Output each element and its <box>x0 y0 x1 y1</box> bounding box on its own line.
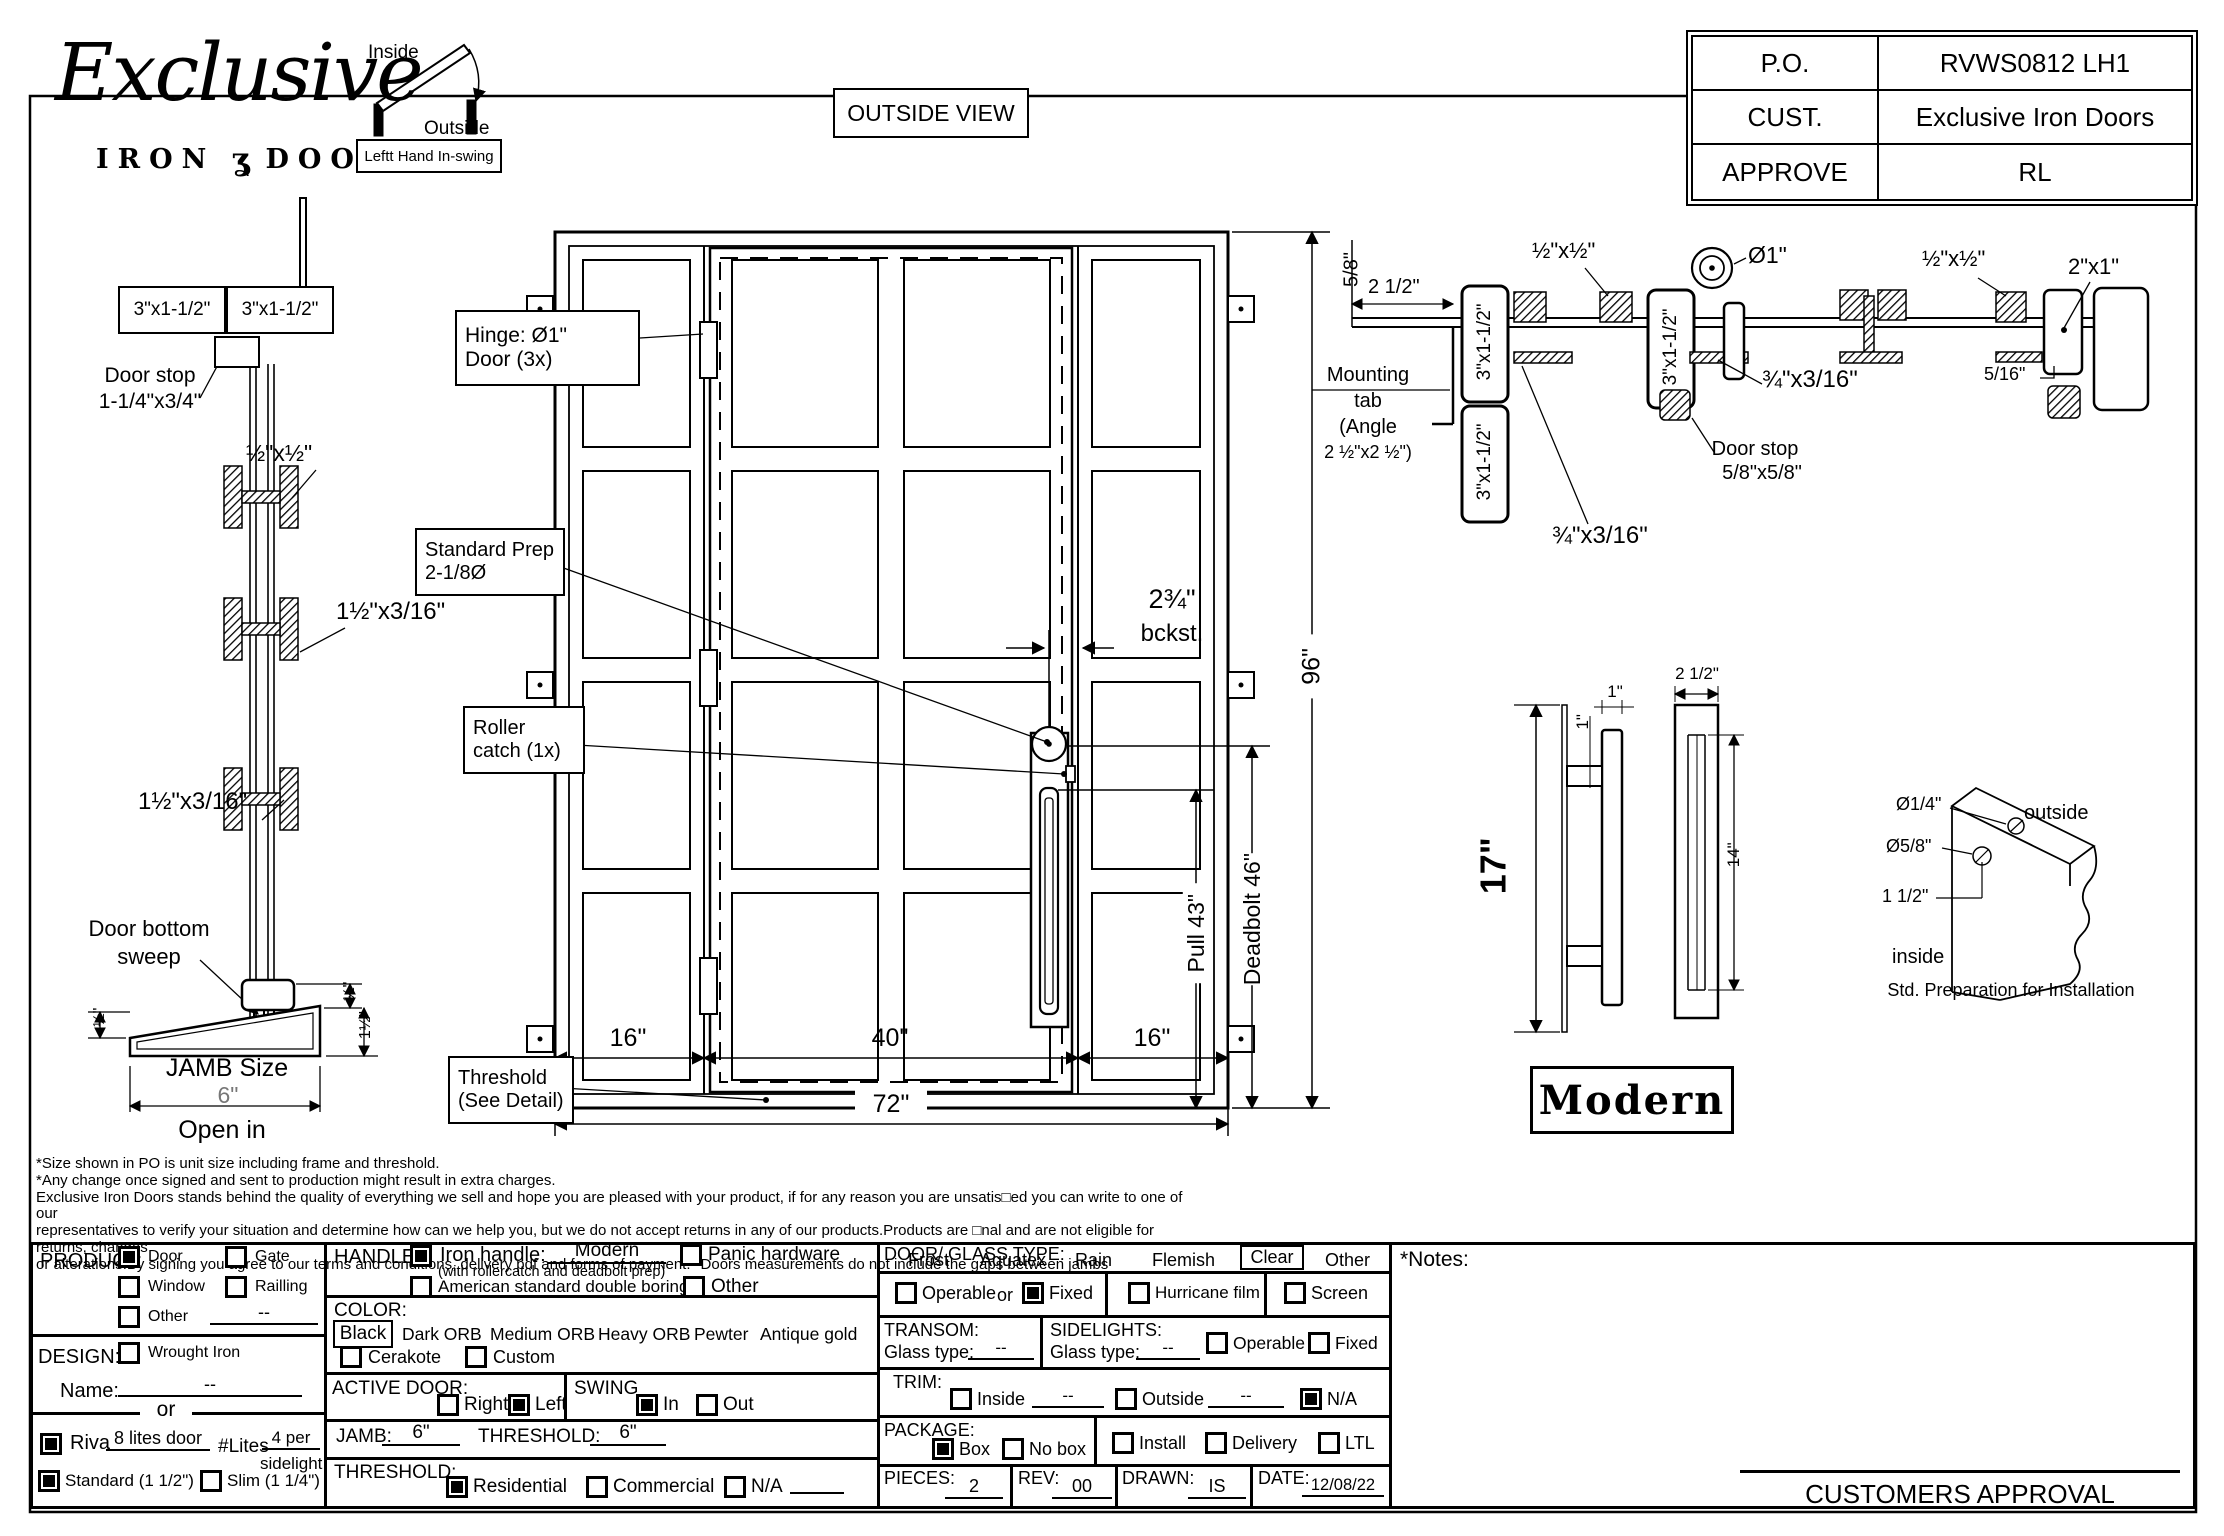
roller-catch-icon <box>1066 766 1075 782</box>
handle-dim-17: 17" <box>1472 831 1513 901</box>
american-boring-label: American standard double boring <box>438 1277 688 1297</box>
riva-lites-value-1[interactable]: 4 per <box>262 1428 320 1450</box>
backset-dim-label: bckst. <box>1124 620 1220 648</box>
commercial-label: Commercial <box>613 1476 714 1498</box>
product-door-label: Door <box>148 1248 183 1266</box>
threshold-na-checkbox[interactable] <box>724 1476 746 1498</box>
design-wrought-label: Wrought Iron <box>148 1344 240 1362</box>
color-title: COLOR: <box>334 1300 407 1322</box>
dim-total-width: 72" <box>855 1090 927 1119</box>
head-door-stop-label-2: 5/8"x5/8" <box>1702 462 1822 485</box>
roller-callout-line1: Roller <box>473 717 525 740</box>
prep-callout-line2: 2-1/8Ø <box>425 562 486 585</box>
design-or-label: or <box>140 1398 192 1422</box>
color-opt-mediumorb[interactable]: Medium ORB <box>490 1324 595 1344</box>
install-label: Install <box>1139 1433 1186 1454</box>
active-left-checkbox[interactable] <box>508 1394 530 1416</box>
trim-inside-checkbox[interactable] <box>950 1388 972 1410</box>
logo-iron: IRON <box>96 144 215 175</box>
panic-label: Panic hardware <box>708 1244 840 1266</box>
date-value[interactable]: 12/08/22 <box>1302 1476 1384 1497</box>
jamb-open-label: Open in <box>160 1116 284 1145</box>
panic-checkbox[interactable] <box>680 1244 702 1266</box>
trim-outside-checkbox[interactable] <box>1115 1388 1137 1410</box>
handle-dim-25: 2 1/2" <box>1660 664 1734 684</box>
logo-ornament-icon: ʓ <box>231 140 249 178</box>
delivery-checkbox[interactable] <box>1205 1432 1227 1454</box>
handle-title: HANDLE: <box>334 1246 421 1269</box>
product-other-value[interactable]: -- <box>210 1302 318 1325</box>
backset-dim <box>1006 630 1114 726</box>
glass-opt-aquatex[interactable]: Aquatex <box>980 1250 1046 1271</box>
dim-deadbolt-height: Deadbolt 46" <box>1239 853 1265 985</box>
package-nobox-checkbox[interactable] <box>1002 1438 1024 1460</box>
approval-signature-line <box>1740 1470 2180 1473</box>
ltl-checkbox[interactable] <box>1318 1432 1340 1454</box>
customer-value: Exclusive Iron Doors <box>1879 91 2191 145</box>
operable-label: Operable <box>922 1283 996 1304</box>
operable-checkbox[interactable] <box>895 1282 917 1304</box>
handle-other-checkbox[interactable] <box>683 1276 705 1298</box>
install-checkbox[interactable] <box>1112 1432 1134 1454</box>
slim-label: Slim (1 1/4") <box>227 1471 320 1491</box>
glass-opt-other[interactable]: Other <box>1325 1250 1370 1271</box>
corner-hole-small: Ø1/4" <box>1896 794 1941 815</box>
active-right-checkbox[interactable] <box>437 1394 459 1416</box>
pieces-value[interactable]: 2 <box>945 1476 1003 1499</box>
hinge-icon <box>700 322 717 1014</box>
jamb-door-stop-label: Door stop <box>85 364 215 388</box>
swing-title: SWING <box>574 1378 638 1400</box>
drawn-label: DRAWN: <box>1122 1468 1194 1489</box>
sidelights-glass-value[interactable]: -- <box>1136 1338 1200 1360</box>
riva-checkbox[interactable] <box>40 1433 62 1455</box>
trim-title: TRIM: <box>893 1372 942 1393</box>
door-bottom-sweep-label-1: Door bottom <box>78 916 220 941</box>
swing-caption: Leftt Hand In-swing <box>356 139 502 173</box>
design-wrought-checkbox[interactable] <box>118 1342 140 1364</box>
standard-label: Standard (1 1/2") <box>65 1471 194 1491</box>
hinge-callout: Hinge: Ø1" Door (3x) <box>455 310 640 386</box>
color-opt-darkorb[interactable]: Dark ORB <box>402 1324 482 1344</box>
head-door-stop-label-1: Door stop <box>1698 438 1812 461</box>
logo-script: Exclusive <box>55 26 422 119</box>
jamb-field-value[interactable]: 6" <box>382 1422 460 1446</box>
product-window-label: Window <box>148 1278 205 1296</box>
handle-detail-linework <box>1514 686 1744 1032</box>
standard-checkbox[interactable] <box>38 1470 60 1492</box>
fixed-checkbox[interactable] <box>1022 1282 1044 1304</box>
head-tube-c-label: 3"x1-1/2" <box>1660 289 1682 405</box>
rev-value[interactable]: 00 <box>1052 1476 1112 1499</box>
corner-hole-big: Ø5/8" <box>1886 836 1931 857</box>
corner-caption: Std. Preparation for Installation <box>1852 980 2170 1001</box>
dim-total-height: 96" <box>1298 634 1327 698</box>
trim-outside-value[interactable]: -- <box>1208 1386 1284 1408</box>
transom-glass-label: Glass type: <box>884 1342 974 1363</box>
custom-color-checkbox[interactable] <box>465 1346 487 1368</box>
spec-sheet: Exclusive IRON ʓ DOORS Inside Outside Le… <box>0 0 2224 1536</box>
notes-label: *Notes: <box>1400 1248 1469 1272</box>
transom-glass-value[interactable]: -- <box>968 1338 1034 1360</box>
fixing-or-label: or <box>997 1285 1013 1306</box>
swing-out-checkbox[interactable] <box>696 1394 718 1416</box>
sidelights-operable-label: Operable <box>1233 1333 1305 1354</box>
jamb-anchor-size: ½"x½" <box>246 440 312 466</box>
residential-checkbox[interactable] <box>446 1476 468 1498</box>
transom-title: TRANSOM: <box>884 1320 979 1341</box>
disclaimer-line-1: *Size shown in PO is unit size including… <box>36 1156 1186 1173</box>
glass-opt-frost[interactable]: Frost <box>908 1250 949 1271</box>
color-selected[interactable]: Black <box>333 1320 393 1348</box>
handle-dim-14: 14" <box>1724 833 1744 877</box>
color-opt-pewter[interactable]: Pewter <box>694 1324 748 1344</box>
head-tube-b-label: 3"x1-1/2" <box>1474 404 1496 520</box>
threshold-na-label: N/A <box>751 1476 783 1498</box>
hurricane-label: Hurricane film <box>1155 1283 1260 1303</box>
mounting-tab-label-4: 2 ½"x2 ½") <box>1298 442 1438 463</box>
head-anchor-size-1: ½"x½" <box>1532 238 1595 263</box>
head-tube-a-label: 3"x1-1/2" <box>1474 284 1496 400</box>
mounting-tab-icon <box>527 296 1254 1052</box>
approve-value: RL <box>1879 145 2191 199</box>
jamb-tube-label-b: 3"x1-1/2" <box>226 286 334 334</box>
hinge-callout-line2: Door (3x) <box>465 348 553 372</box>
fixed-label: Fixed <box>1049 1283 1093 1304</box>
jamb-dim-one-half: 1½" <box>357 1001 375 1049</box>
package-box-label: Box <box>959 1439 990 1460</box>
po-label: P.O. <box>1693 37 1879 91</box>
design-name-label: Name: <box>60 1380 119 1403</box>
threshold-callout: Threshold (See Detail) <box>448 1056 574 1124</box>
corner-spacing: 1 1/2" <box>1882 886 1928 907</box>
package-nobox-label: No box <box>1029 1439 1086 1460</box>
notes-cell <box>1389 1242 2196 1509</box>
trim-inside-value[interactable]: -- <box>1032 1386 1104 1408</box>
trim-na-label: N/A <box>1327 1389 1357 1410</box>
mounting-tab-label-2: tab <box>1312 390 1424 413</box>
glass-opt-rain[interactable]: Rain <box>1075 1250 1112 1271</box>
product-railling-label: Railling <box>255 1278 307 1296</box>
head-flat-size-2: ¾"x3/16" <box>1552 522 1648 550</box>
sidelights-fixed-label: Fixed <box>1335 1333 1378 1354</box>
sidelights-operable-checkbox[interactable] <box>1206 1332 1228 1354</box>
jamb-door-stop-size: 1-1/4"x3/4" <box>72 390 228 414</box>
ltl-label: LTL <box>1345 1433 1375 1454</box>
residential-label: Residential <box>473 1476 567 1498</box>
handle-style-label: Modern <box>1530 1066 1734 1134</box>
approve-label: APPROVE <box>1693 145 1879 199</box>
trim-na-checkbox[interactable] <box>1300 1388 1322 1410</box>
jamb-tube-label-a: 3"x1-1/2" <box>118 286 226 334</box>
swing-in-label: In <box>663 1394 679 1416</box>
american-boring-checkbox[interactable] <box>410 1276 432 1298</box>
corner-outside-label: outside <box>2024 802 2089 825</box>
head-flat-size-1: ¾"x3/16" <box>1762 366 1858 394</box>
jamb-door-stop-section <box>214 336 260 368</box>
hurricane-checkbox[interactable] <box>1128 1282 1150 1304</box>
threshold-title: THRESHOLD: <box>334 1462 456 1484</box>
glass-opt-flemish[interactable]: Flemish <box>1152 1250 1215 1271</box>
po-value: RVWS0812 LH1 <box>1879 37 2191 91</box>
delivery-label: Delivery <box>1232 1433 1297 1454</box>
sidelights-glass-label: Glass type: <box>1050 1342 1140 1363</box>
dim-sidelight-right: 16" <box>1112 1024 1192 1053</box>
dim-sidelight-left: 16" <box>588 1024 668 1053</box>
drawn-value[interactable]: IS <box>1188 1476 1246 1499</box>
commercial-checkbox[interactable] <box>586 1476 608 1498</box>
package-box-checkbox[interactable] <box>932 1438 954 1460</box>
product-other-checkbox[interactable] <box>118 1306 140 1328</box>
cerakote-checkbox[interactable] <box>340 1346 362 1368</box>
disclaimer-line-3: Exclusive Iron Doors stands behind the q… <box>36 1190 1186 1224</box>
mounting-tab-label-1: Mounting <box>1312 364 1424 387</box>
swing-inside-label: Inside <box>368 42 419 64</box>
screen-checkbox[interactable] <box>1284 1282 1306 1304</box>
color-opt-heavyorb[interactable]: Heavy ORB <box>598 1324 690 1344</box>
handle-dim-1b: 1" <box>1598 682 1632 702</box>
active-left-label: Left <box>535 1394 567 1416</box>
swing-in-checkbox[interactable] <box>636 1394 658 1416</box>
prep-callout: Standard Prep 2-1/8Ø <box>415 528 565 596</box>
jamb-size-value: 6" <box>196 1082 260 1108</box>
trim-outside-label: Outside <box>1142 1389 1204 1410</box>
product-window-checkbox[interactable] <box>118 1276 140 1298</box>
trim-inside-label: Inside <box>977 1389 1025 1410</box>
info-table: P.O. RVWS0812 LH1 CUST. Exclusive Iron D… <box>1686 30 2198 206</box>
elevation-linework <box>527 232 1330 1136</box>
head-dim-212: 2 1/2" <box>1368 276 1420 299</box>
riva-value[interactable]: 8 lites door <box>106 1428 210 1451</box>
slim-checkbox[interactable] <box>200 1470 222 1492</box>
backset-dim-value: 2¾" <box>1124 584 1220 615</box>
door-bottom-sweep-label-2: sweep <box>100 944 198 969</box>
leader-lines <box>558 334 1067 1103</box>
active-right-label: Right <box>464 1394 508 1416</box>
jamb-flat-bar-size-1: 1½"x3/16" <box>336 598 445 626</box>
custom-color-label: Custom <box>493 1347 555 1368</box>
product-door-checkbox[interactable] <box>118 1246 140 1268</box>
roller-callout-line2: catch (1x) <box>473 740 561 763</box>
swing-outside-label: Outside <box>424 118 489 140</box>
handle-other-label: Other <box>711 1276 759 1298</box>
jamb-flat-bar-size-2: 1½"x3/16" <box>138 788 247 816</box>
threshold-dim-label: THRESHOLD: <box>478 1426 600 1448</box>
design-title: DESIGN: <box>38 1346 120 1369</box>
head-anchor-size-2: ½"x½" <box>1922 246 1985 271</box>
iron-handle-checkbox[interactable] <box>410 1245 432 1267</box>
jamb-dim-half-left: ½" <box>91 995 109 1039</box>
swing-out-label: Out <box>723 1394 754 1416</box>
mounting-tab-label-3: (Angle <box>1312 416 1424 439</box>
handle-dim-1a: 1" <box>1573 705 1593 739</box>
color-opt-antiquegold[interactable]: Antique gold <box>760 1324 857 1344</box>
approval-label: CUSTOMERS APPROVAL <box>1740 1480 2180 1510</box>
product-gate-label: Gate <box>255 1248 290 1266</box>
sidelights-fixed-checkbox[interactable] <box>1308 1332 1330 1354</box>
threshold-dim-value[interactable]: 6" <box>590 1422 666 1446</box>
pull-handle-icon <box>1040 788 1058 1014</box>
glass-selected[interactable]: Clear <box>1240 1245 1304 1270</box>
head-dim-58: 5/8" <box>1341 246 1364 294</box>
product-railling-checkbox[interactable] <box>225 1276 247 1298</box>
outside-view-label: OUTSIDE VIEW <box>833 88 1029 138</box>
head-tube-21-label: 2"x1" <box>2068 254 2119 279</box>
product-gate-checkbox[interactable] <box>225 1246 247 1268</box>
head-hinge-dia: Ø1" <box>1748 242 1787 268</box>
threshold-callout-line1: Threshold <box>458 1067 547 1090</box>
head-gap-dim: 5/16" <box>1984 364 2025 385</box>
screen-label: Screen <box>1311 1283 1368 1304</box>
cerakote-label: Cerakote <box>368 1347 441 1368</box>
roller-catch-callout: Roller catch (1x) <box>463 706 585 774</box>
dim-door-width: 40" <box>850 1024 930 1053</box>
corner-inside-label: inside <box>1892 946 1944 969</box>
iron-handle-value[interactable]: Modern <box>548 1240 666 1264</box>
dim-pull-height: Pull 43" <box>1183 883 1209 983</box>
riva-label: Riva <box>70 1432 110 1455</box>
customer-label: CUST. <box>1693 91 1879 145</box>
design-name-value[interactable]: -- <box>118 1374 302 1397</box>
hinge-callout-line1: Hinge: Ø1" <box>465 324 567 348</box>
prep-callout-line1: Standard Prep <box>425 539 554 562</box>
jamb-size-label: JAMB Size <box>146 1054 308 1083</box>
disclaimer-line-2: *Any change once signed and sent to prod… <box>36 1173 1186 1190</box>
product-other-label: Other <box>148 1308 188 1326</box>
threshold-callout-line2: (See Detail) <box>458 1090 564 1113</box>
threshold-na-value[interactable] <box>790 1470 844 1494</box>
